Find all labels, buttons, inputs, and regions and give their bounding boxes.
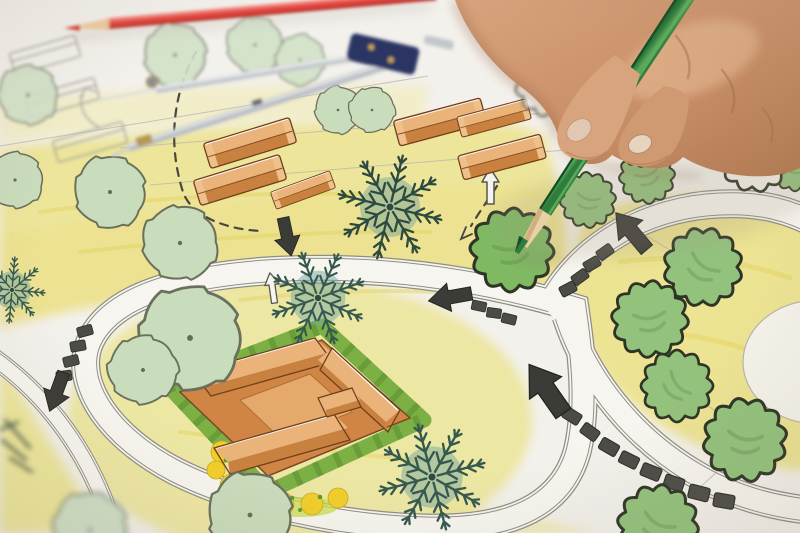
vignette xyxy=(0,0,800,533)
photo-stage xyxy=(0,0,800,533)
landscape-plan-photo xyxy=(0,0,800,533)
